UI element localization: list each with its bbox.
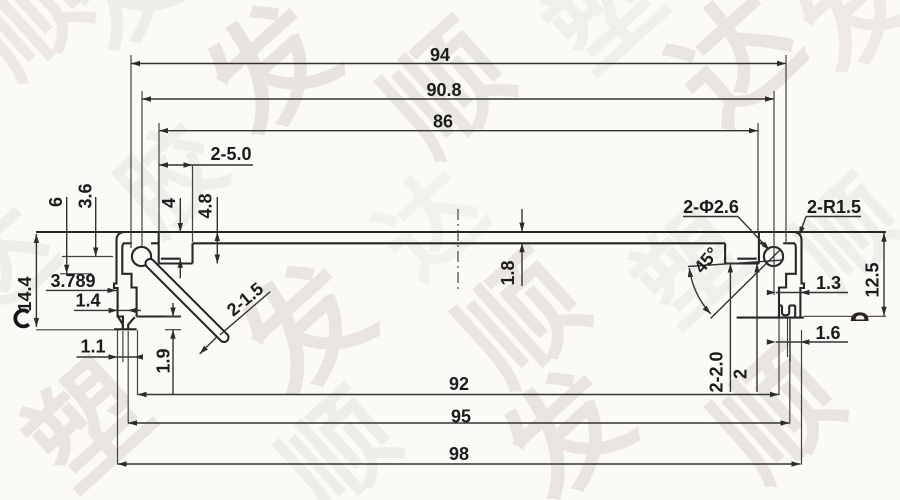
svg-text:86: 86: [433, 112, 453, 132]
svg-text:3.789: 3.789: [50, 271, 95, 291]
svg-text:2-Φ2.6: 2-Φ2.6: [683, 197, 739, 217]
svg-text:14.4: 14.4: [15, 276, 35, 311]
svg-text:90.8: 90.8: [426, 80, 461, 100]
svg-text:1.8: 1.8: [498, 260, 518, 285]
svg-text:95: 95: [451, 407, 471, 427]
svg-text:2-R1.5: 2-R1.5: [807, 197, 861, 217]
svg-text:1.4: 1.4: [75, 291, 100, 311]
svg-text:3.6: 3.6: [76, 183, 96, 208]
svg-text:达: 达: [0, 185, 79, 342]
svg-text:98: 98: [449, 444, 469, 464]
svg-text:发: 发: [183, 0, 362, 159]
svg-text:2-5.0: 2-5.0: [210, 144, 251, 164]
svg-text:1.9: 1.9: [154, 348, 174, 373]
svg-text:4.8: 4.8: [196, 193, 216, 218]
svg-text:1.6: 1.6: [815, 323, 840, 343]
svg-text:2: 2: [731, 369, 751, 379]
svg-text:92: 92: [449, 374, 469, 394]
svg-text:12.5: 12.5: [863, 262, 883, 297]
svg-text:6: 6: [46, 197, 66, 207]
svg-text:发: 发: [218, 240, 397, 420]
svg-text:94: 94: [430, 45, 450, 65]
svg-text:4: 4: [159, 198, 179, 208]
svg-text:1.1: 1.1: [80, 337, 105, 357]
svg-text:塑: 塑: [3, 340, 174, 500]
svg-text:2-2.0: 2-2.0: [707, 351, 727, 392]
svg-text:1.3: 1.3: [816, 273, 841, 293]
